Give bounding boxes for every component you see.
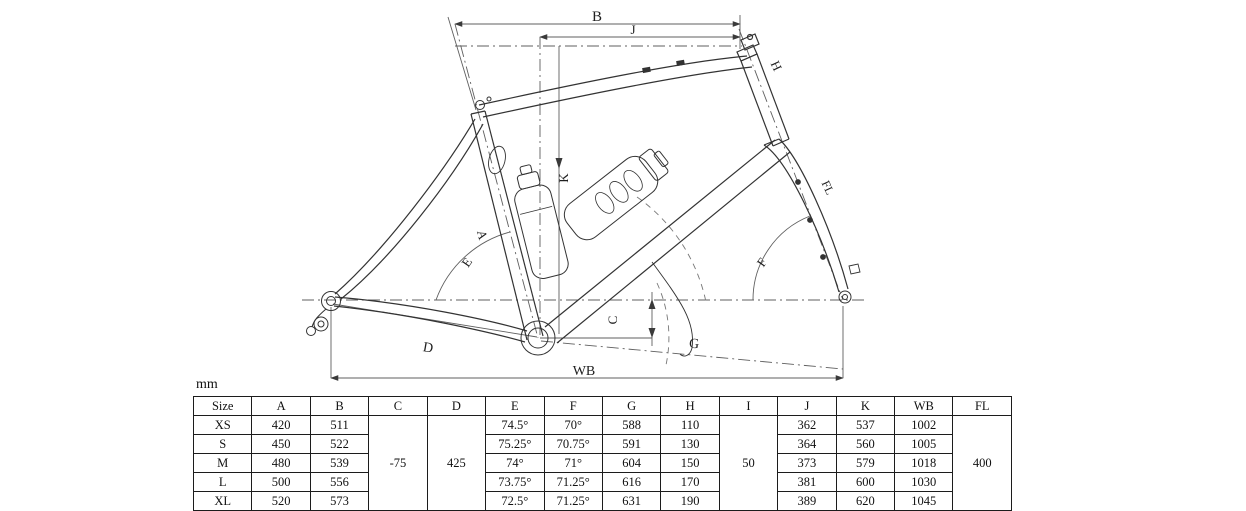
column-header-Size: Size [194,397,252,416]
cell-G-XS: 588 [602,416,660,435]
cell-A-S: 450 [252,435,310,454]
header-row: SizeABCDEFGHIJKWBFL [194,397,1012,416]
cell-E-S: 75.25° [486,435,544,454]
cell-B-L: 556 [310,473,368,492]
cell-F-M: 71° [544,454,602,473]
cell-F-XL: 71.25° [544,492,602,511]
cell-H-M: 150 [661,454,719,473]
dim-label-bb-drop: C [605,316,620,325]
cell-G-XL: 631 [602,492,660,511]
cell-F-XS: 70° [544,416,602,435]
cell-FL-all-sizes: 400 [953,416,1012,511]
cell-K-M: 579 [836,454,894,473]
cell-WB-XS: 1002 [895,416,953,435]
cell-B-M: 539 [310,454,368,473]
cell-K-XL: 620 [836,492,894,511]
cell-H-L: 170 [661,473,719,492]
cell-WB-XL: 1045 [895,492,953,511]
column-header-K: K [836,397,894,416]
column-header-D: D [427,397,485,416]
column-header-A: A [252,397,310,416]
dimension-letters: B J H K A E F C D G WB FL [422,9,838,379]
dim-label-fork-length: FL [819,178,838,197]
frame-geometry-sheet: B J H K A E F C D G WB FL mm SizeABCDEFG… [0,0,1246,511]
geometry-table-body: XS420511-7542574.5°70°588110503625371002… [194,416,1012,511]
cell-E-XS: 74.5° [486,416,544,435]
cell-G-L: 616 [602,473,660,492]
cell-F-S: 70.75° [544,435,602,454]
column-header-B: B [310,397,368,416]
dim-label-seat-angle: E [458,255,475,270]
cell-WB-M: 1018 [895,454,953,473]
cell-H-S: 130 [661,435,719,454]
dim-label-wheelbase: WB [573,364,596,379]
size-row-XS: XS420511-7542574.5°70°588110503625371002… [194,416,1012,435]
cell-J-XS: 362 [778,416,836,435]
column-header-WB: WB [895,397,953,416]
cell-K-XS: 537 [836,416,894,435]
cell-J-M: 373 [778,454,836,473]
cell-H-XL: 190 [661,492,719,511]
dimension-lines [302,15,868,378]
column-header-H: H [661,397,719,416]
cell-Size-S: S [194,435,252,454]
cell-B-XS: 511 [310,416,368,435]
frame-tubes [334,34,860,343]
size-row-XL: XL52057372.5°71.25°6311903896201045 [194,492,1012,511]
dim-label-reach: J [630,22,635,37]
cell-WB-L: 1030 [895,473,953,492]
cell-A-L: 500 [252,473,310,492]
units-label: mm [196,377,218,393]
size-row-L: L50055673.75°71.25°6161703816001030 [194,473,1012,492]
column-header-FL: FL [953,397,1012,416]
cell-G-M: 604 [602,454,660,473]
geometry-table: SizeABCDEFGHIJKWBFL XS420511-7542574.5°7… [193,396,1012,511]
cell-G-S: 591 [602,435,660,454]
dim-label-head-tube: H [768,58,786,73]
cell-A-XS: 420 [252,416,310,435]
cell-E-M: 74° [486,454,544,473]
cell-J-S: 364 [778,435,836,454]
cell-D-all-sizes: 425 [427,416,485,511]
cell-E-XL: 72.5° [486,492,544,511]
cell-B-XL: 573 [310,492,368,511]
dim-label-head-angle: F [754,255,770,270]
dim-label-front-center: G [688,337,699,353]
cell-Size-M: M [194,454,252,473]
cell-E-L: 73.75° [486,473,544,492]
column-header-F: F [544,397,602,416]
cell-Size-L: L [194,473,252,492]
cell-J-XL: 389 [778,492,836,511]
column-header-I: I [719,397,777,416]
dim-label-chainstay: D [422,340,435,357]
cell-J-L: 381 [778,473,836,492]
dim-label-stack: K [556,173,571,183]
column-header-J: J [778,397,836,416]
geometry-table-head: SizeABCDEFGHIJKWBFL [194,397,1012,416]
cell-I-all-sizes: 50 [719,416,777,511]
size-row-M: M48053974°71°6041503735791018 [194,454,1012,473]
frame-details [307,60,852,356]
cell-Size-XS: XS [194,416,252,435]
dim-label-top-tube: B [592,9,602,25]
cell-K-S: 560 [836,435,894,454]
cell-A-M: 480 [252,454,310,473]
cell-K-L: 600 [836,473,894,492]
cell-B-S: 522 [310,435,368,454]
down-tube-bottle [559,140,677,245]
cell-WB-S: 1005 [895,435,953,454]
cell-Size-XL: XL [194,492,252,511]
frame-drawing: B J H K A E F C D G WB FL [0,0,1246,394]
cell-A-XL: 520 [252,492,310,511]
size-row-S: S45052275.25°70.75°5911303645601005 [194,435,1012,454]
cell-C-all-sizes: -75 [369,416,427,511]
cell-F-L: 71.25° [544,473,602,492]
cell-H-XS: 110 [661,416,719,435]
column-header-C: C [369,397,427,416]
column-header-E: E [486,397,544,416]
column-header-G: G [602,397,660,416]
